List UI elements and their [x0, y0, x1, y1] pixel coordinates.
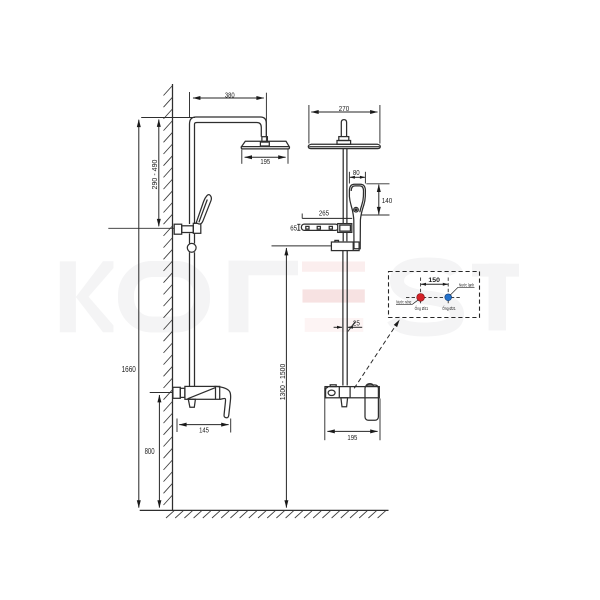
svg-text:140: 140 — [382, 196, 392, 205]
svg-text:Nước lạnh: Nước lạnh — [459, 283, 474, 288]
svg-text:Ống Ø21: Ống Ø21 — [415, 306, 429, 311]
svg-text:80: 80 — [353, 168, 360, 177]
svg-text:800: 800 — [145, 447, 156, 456]
svg-text:1300 - 1500: 1300 - 1500 — [278, 364, 287, 401]
svg-text:290 - 490: 290 - 490 — [150, 160, 159, 190]
svg-text:25: 25 — [353, 319, 360, 328]
svg-text:Nước nóng: Nước nóng — [396, 300, 411, 305]
svg-text:380: 380 — [225, 90, 235, 99]
svg-text:270: 270 — [339, 104, 349, 113]
svg-text:265: 265 — [319, 209, 329, 218]
svg-text:150: 150 — [428, 277, 440, 284]
svg-text:195: 195 — [347, 433, 357, 442]
svg-text:145: 145 — [199, 426, 209, 435]
svg-text:1660: 1660 — [122, 365, 137, 374]
svg-text:Ống Ø21: Ống Ø21 — [442, 306, 456, 311]
svg-text:195: 195 — [260, 157, 270, 166]
svg-text:65: 65 — [290, 223, 297, 232]
